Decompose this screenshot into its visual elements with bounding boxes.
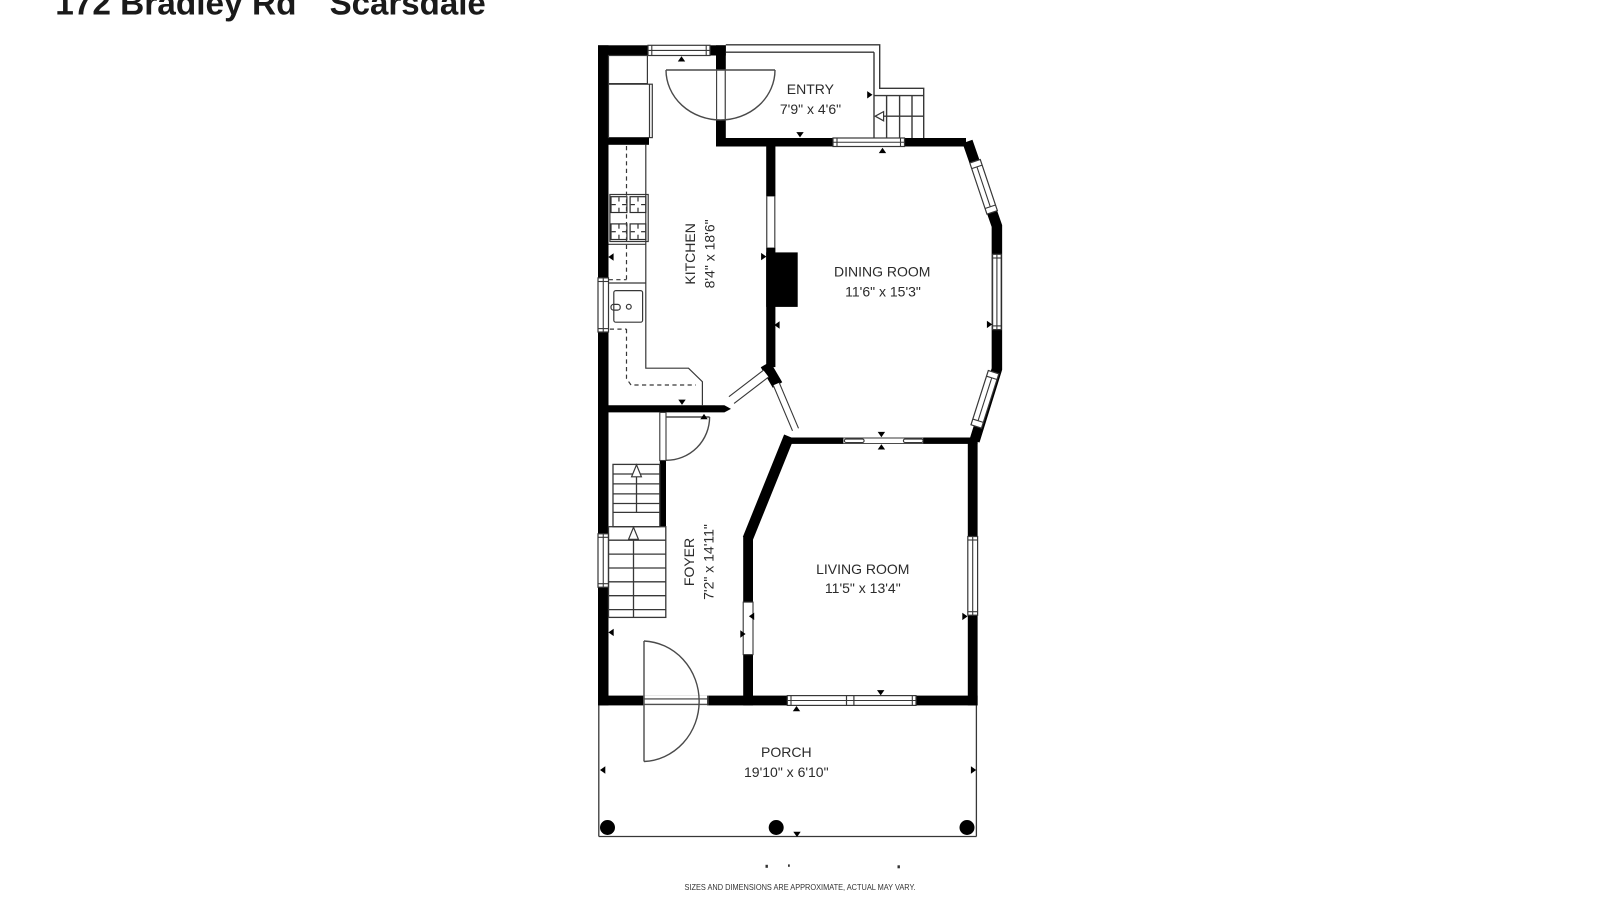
svg-text:19'10" x 6'10": 19'10" x 6'10" [744, 764, 829, 780]
svg-text:LIVING ROOM: LIVING ROOM [816, 561, 909, 577]
svg-text:7'9" x 4'6": 7'9" x 4'6" [780, 101, 841, 117]
svg-text:DINING ROOM: DINING ROOM [834, 264, 930, 280]
svg-text:FOYER: FOYER [681, 538, 697, 586]
svg-text:11'5" x 13'4": 11'5" x 13'4" [825, 580, 901, 596]
svg-text:ENTRY: ENTRY [787, 81, 835, 97]
svg-text:7'2" x 14'11": 7'2" x 14'11" [700, 524, 716, 600]
svg-text:11'6" x 15'3": 11'6" x 15'3" [845, 283, 921, 299]
svg-text:172 Bradley Rd: 172 Bradley Rd [55, 0, 296, 23]
svg-text:KITCHEN: KITCHEN [682, 223, 698, 284]
svg-text:SIZES AND DIMENSIONS ARE APPRO: SIZES AND DIMENSIONS ARE APPROXIMATE, AC… [685, 882, 916, 892]
svg-text:Scarsdale: Scarsdale [330, 0, 486, 23]
svg-text:PORCH: PORCH [761, 744, 812, 760]
svg-text:8'4" x 18'6": 8'4" x 18'6" [701, 219, 717, 288]
